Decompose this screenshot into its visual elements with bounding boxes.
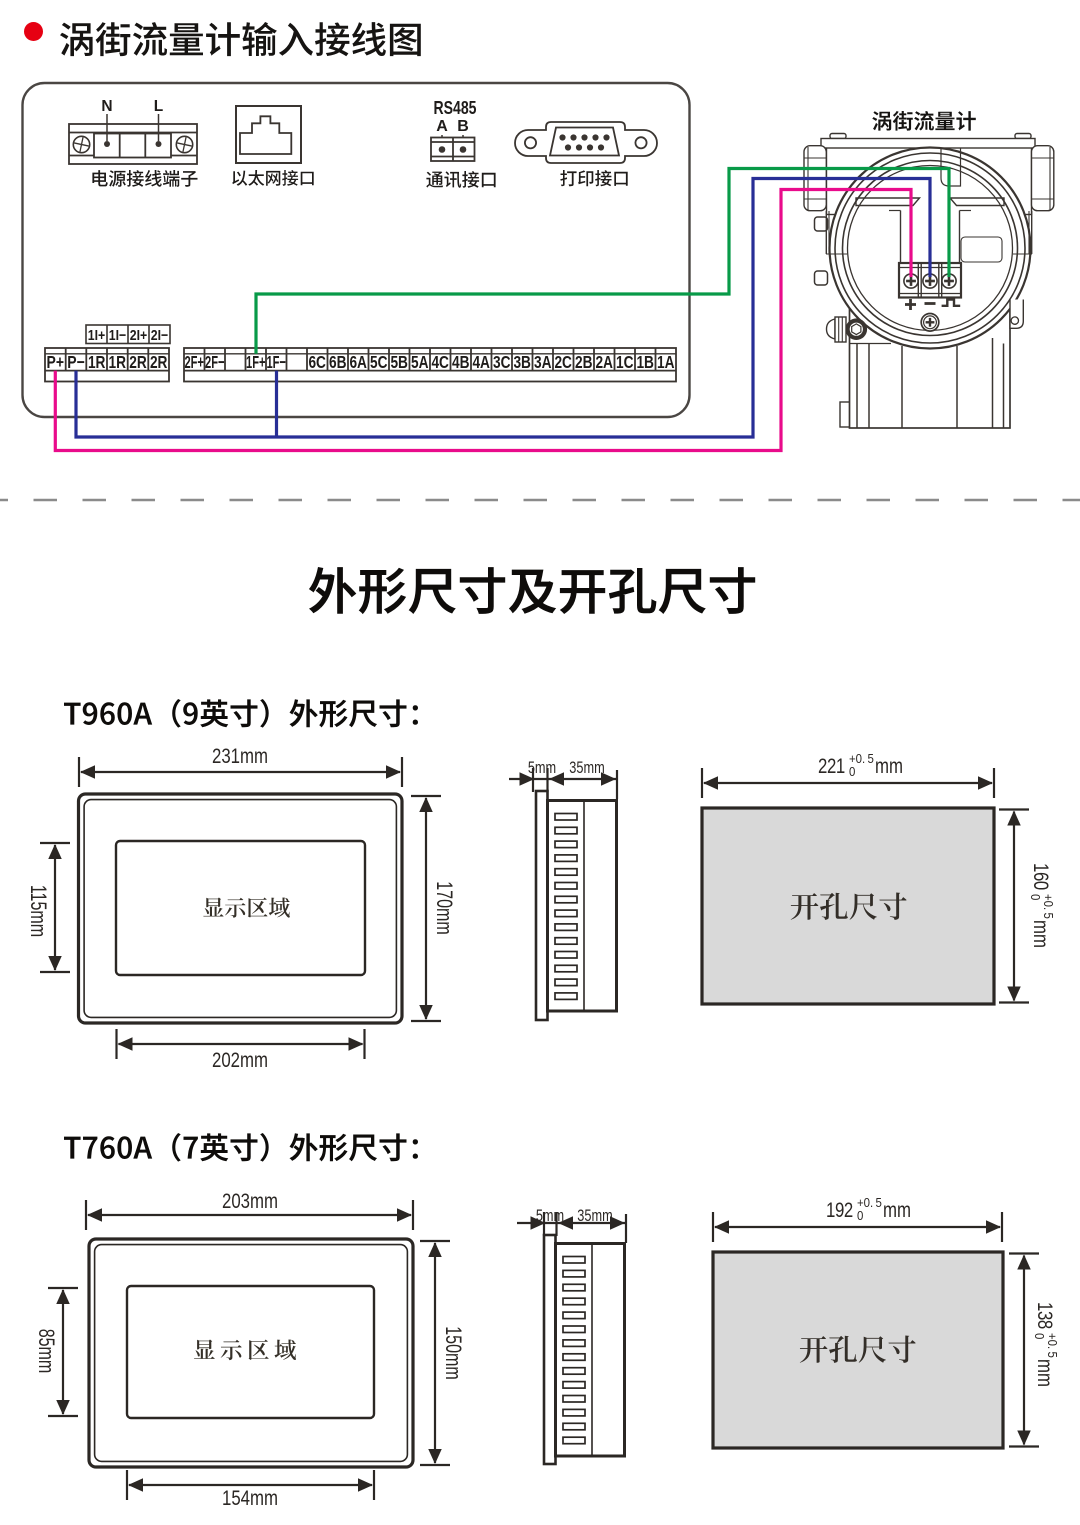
svg-text:P−: P− bbox=[67, 352, 85, 372]
svg-text:RS485: RS485 bbox=[434, 98, 477, 118]
svg-text:6C: 6C bbox=[308, 352, 326, 372]
svg-text:2B: 2B bbox=[575, 352, 593, 372]
svg-text:2C: 2C bbox=[554, 352, 572, 372]
svg-text:5C: 5C bbox=[370, 352, 388, 372]
svg-text:1I−: 1I− bbox=[109, 327, 127, 344]
svg-text:L: L bbox=[154, 98, 163, 115]
svg-text:2R: 2R bbox=[129, 352, 147, 372]
svg-text:1B: 1B bbox=[636, 352, 654, 372]
svg-text:3C: 3C bbox=[493, 352, 511, 372]
svg-text:2A: 2A bbox=[595, 352, 613, 372]
svg-text:2I−: 2I− bbox=[151, 327, 169, 344]
svg-text:1R: 1R bbox=[109, 352, 127, 372]
svg-text:2R: 2R bbox=[150, 352, 168, 372]
svg-text:4C: 4C bbox=[431, 352, 449, 372]
svg-text:3B: 3B bbox=[513, 352, 531, 372]
svg-text:6A: 6A bbox=[349, 352, 367, 372]
svg-text:A: A bbox=[436, 118, 448, 135]
svg-text:5A: 5A bbox=[411, 352, 429, 372]
svg-text:1R: 1R bbox=[88, 352, 106, 372]
svg-text:4A: 4A bbox=[472, 352, 490, 372]
svg-text:N: N bbox=[101, 98, 112, 115]
svg-text:B: B bbox=[457, 118, 469, 135]
svg-text:5B: 5B bbox=[390, 352, 408, 372]
svg-text:2F+: 2F+ bbox=[184, 352, 204, 372]
svg-text:3A: 3A bbox=[534, 352, 552, 372]
svg-text:2F−: 2F− bbox=[205, 352, 225, 372]
svg-text:6B: 6B bbox=[329, 352, 347, 372]
svg-text:P+: P+ bbox=[47, 352, 65, 372]
svg-text:1F−: 1F− bbox=[266, 352, 286, 372]
svg-text:1C: 1C bbox=[616, 352, 634, 372]
svg-text:1F+: 1F+ bbox=[246, 352, 266, 372]
svg-text:1A: 1A bbox=[657, 352, 675, 372]
svg-text:4B: 4B bbox=[452, 352, 470, 372]
svg-text:1I+: 1I+ bbox=[88, 327, 106, 344]
svg-text:2I+: 2I+ bbox=[130, 327, 148, 344]
